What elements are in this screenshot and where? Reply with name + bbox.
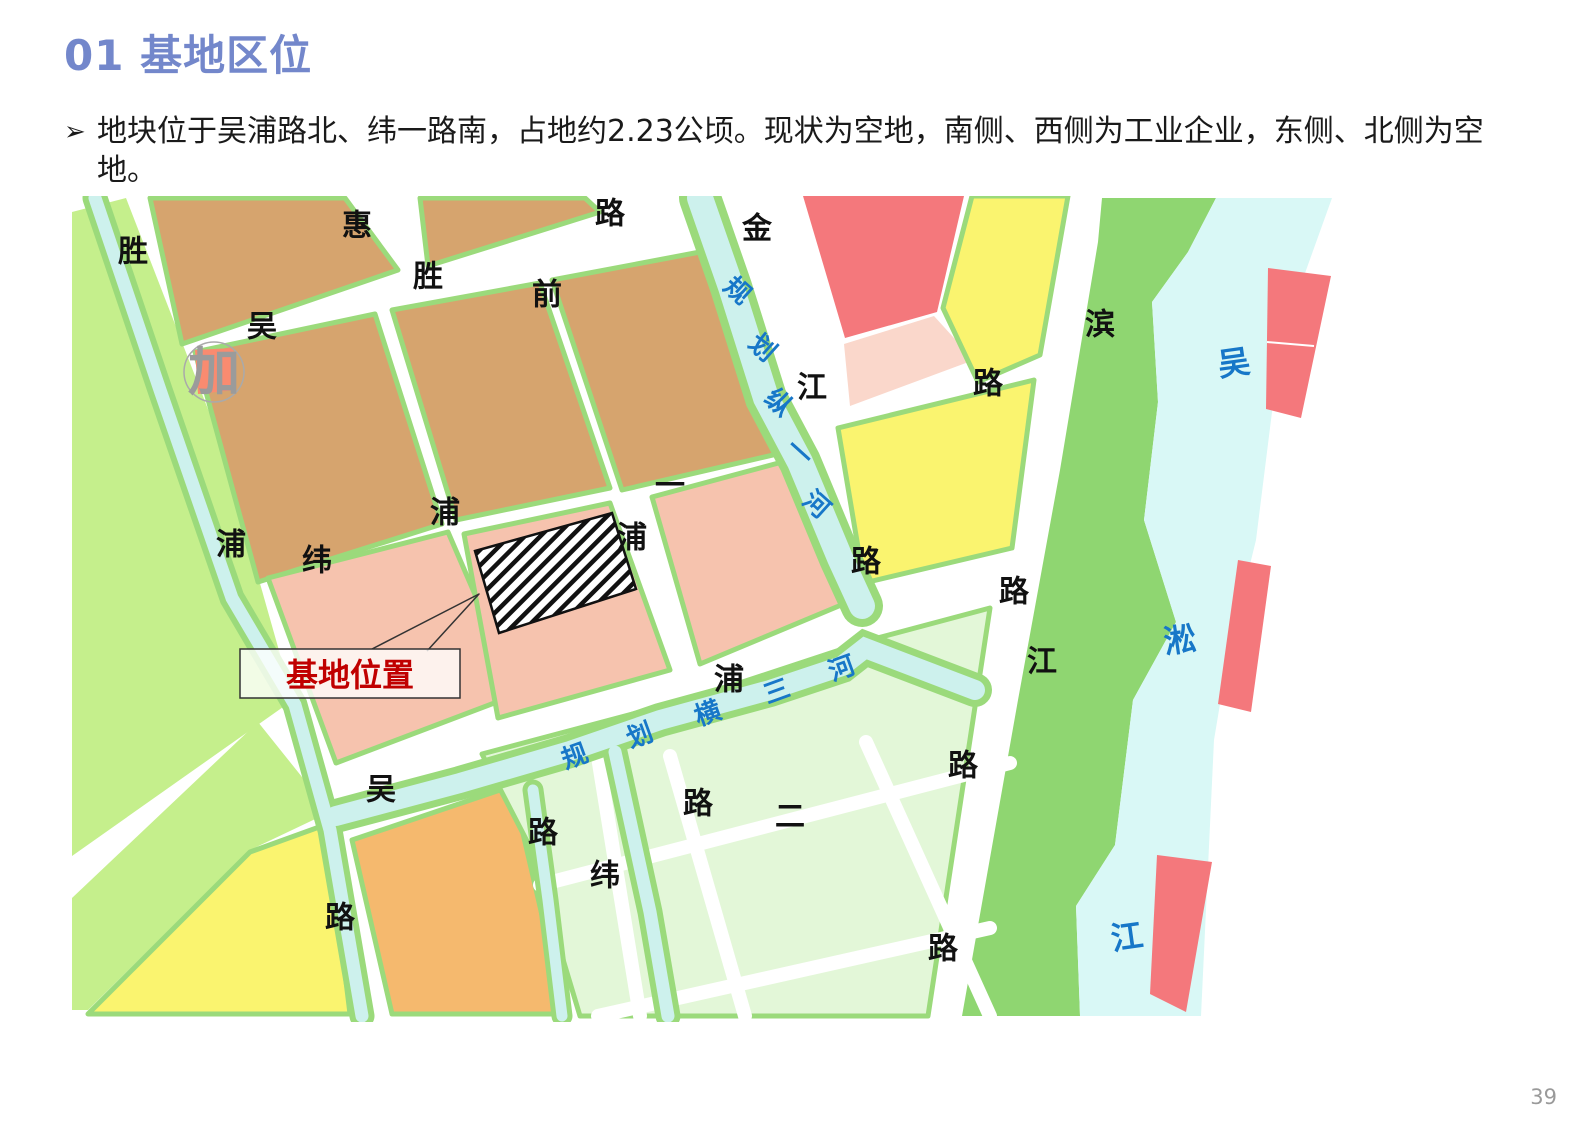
map-label: 吴 [366, 773, 396, 808]
map-label: 加 [188, 343, 240, 403]
map-label: 一 [655, 469, 685, 504]
landuse-block [803, 196, 964, 338]
bullet-block: ➢ 地块位于吴浦路北、纬一路南，占地约2.23公顷。现状为空地，南侧、西侧为工业… [64, 112, 1500, 190]
map-label: 路 [325, 901, 356, 936]
map-label: 纬 [590, 859, 620, 894]
map-label: 淞 [1162, 619, 1199, 661]
map-label: 纬 [302, 544, 332, 579]
map-label: 浦 [714, 663, 744, 698]
map-label: 吴 [1216, 342, 1253, 384]
map-label: 二 [775, 800, 805, 835]
map-label: 惠 [342, 209, 372, 244]
bullet-text: 地块位于吴浦路北、纬一路南，占地约2.23公顷。现状为空地，南侧、西侧为工业企业… [97, 112, 1500, 190]
callout-label: 基地位置 [286, 656, 414, 694]
page-number: 39 [1530, 1085, 1557, 1109]
map-label: 路 [851, 545, 882, 580]
map-label: 路 [973, 367, 1004, 402]
map-label: 浦 [430, 496, 460, 531]
map-label: 前 [532, 278, 562, 313]
map-label: 路 [928, 932, 959, 967]
map-label: 浦 [216, 528, 246, 563]
map-label: 江 [797, 371, 827, 406]
landuse-block [420, 198, 600, 266]
map-label: 胜 [118, 235, 148, 270]
map-label: 江 [1027, 645, 1057, 680]
map-label: 路 [683, 787, 714, 822]
map-label: 金 [741, 212, 773, 247]
map-label: 江 [1109, 916, 1146, 958]
map-label: 路 [595, 197, 626, 232]
map-container: 基地位置 胜惠路金胜前吴江滨路浦浦纬一浦路浦路江吴路路纬路二路路规划纵一河规划横… [70, 196, 1332, 1022]
site-location-map: 基地位置 胜惠路金胜前吴江滨路浦浦纬一浦路浦路江吴路路纬路二路路规划纵一河规划横… [70, 196, 1332, 1022]
map-label: 胜 [413, 260, 443, 295]
map-label: 吴 [247, 310, 277, 345]
map-label: 路 [999, 575, 1030, 610]
map-label: 浦 [617, 521, 647, 556]
bullet-arrow-icon: ➢ [64, 113, 86, 152]
slide: 01 基地区位 ➢ 地块位于吴浦路北、纬一路南，占地约2.23公顷。现状为空地，… [0, 0, 1587, 1123]
page-title: 01 基地区位 [64, 22, 312, 83]
map-label: 路 [528, 816, 559, 851]
map-label: 滨 [1085, 308, 1115, 343]
map-label: 路 [948, 749, 979, 784]
